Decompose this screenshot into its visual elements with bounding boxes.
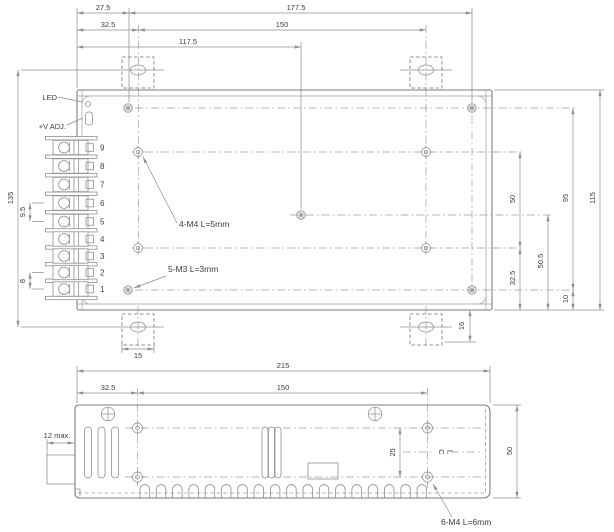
vent-slot [275,427,281,478]
m3-screw-bottom-right [468,286,477,295]
terminal-6 [53,196,94,210]
dim-215: 215 [277,361,290,370]
top-view: 9 8 7 6 5 4 3 2 1 LED [6,3,604,360]
terminal-block: 9 8 7 6 5 4 3 2 1 [46,137,106,300]
dim-12-max: 12 max. [44,431,71,440]
dim-9-5: 9.5 [18,207,27,217]
terminal-4 [53,232,94,246]
terminal-number: 8 [100,162,105,171]
terminal-number: 2 [100,269,105,278]
led-label: LED [42,93,57,102]
terminal-3 [53,249,94,263]
m3-screw-bottom-left [124,286,133,295]
centerline-symbol-c: C [437,449,446,455]
terminal-7 [53,177,94,191]
dim-117-5: 117.5 [179,37,197,46]
annotation-6-m4: 6-M4 L=6mm [441,517,491,527]
top-view-dimensions: 27.5 177.5 32.5 150 117.5 135 9.5 8 50 3… [6,3,604,360]
terminal-9 [53,140,94,154]
bottom-view: C L 215 32.5 150 12 max. 25 50 6-M4 [44,361,521,527]
bottom-view-body: C L [47,405,490,498]
dim-32-5-bottom: 32.5 [101,383,116,392]
vent-slot [262,427,268,478]
top-view-centerlines [135,25,577,348]
dim-27-5: 27.5 [96,3,111,12]
dim-25: 25 [388,448,397,456]
dim-135: 135 [6,192,15,205]
terminal-number: 4 [100,235,105,244]
terminal-number: 5 [100,218,105,227]
centerline-symbol-l: L [446,450,455,454]
terminal-number: 6 [100,199,105,208]
dim-50-5: 50.5 [536,254,545,269]
phillips-screw-right [368,407,382,421]
mounting-bracket-top-left [21,57,164,88]
terminal-5 [53,214,94,228]
m3-screw-center [297,211,306,220]
phillips-screw-left [101,407,115,421]
mounting-bracket-bottom-left [21,314,164,345]
voltage-adjust-pot [86,112,93,125]
dim-10: 10 [561,295,570,303]
dim-50-bottom: 50 [505,447,514,455]
terminal-1 [53,282,94,296]
dim-32-5: 32.5 [101,20,116,29]
bottom-view-annotations: 6-M4 L=6mm [433,484,491,527]
m3-screw-top-left [124,104,133,113]
terminal-2 [53,265,94,279]
annotation-5-m3: 5-M3 L=3mm [168,264,218,274]
terminal-cover-protrusion [47,455,75,484]
terminal-number: 7 [100,181,105,190]
vent-slot [112,427,119,478]
dim-150-bottom: 150 [277,383,290,392]
v-adj-label: +V ADJ. [39,122,66,131]
terminal-number: 3 [100,252,105,261]
dim-15: 15 [134,351,142,360]
vent-slot [98,427,105,478]
dim-8: 8 [18,279,27,283]
top-view-annotations: 4-M4 L=5mm 5-M3 L=3mm [134,157,229,288]
vent-slot [269,427,275,478]
label-plate [308,463,338,479]
dim-115: 115 [588,192,597,204]
dim-150: 150 [276,20,289,29]
dim-16: 16 [457,322,466,330]
dim-50: 50 [508,195,517,203]
vent-slot [85,427,92,478]
m4-hole-top-left [132,146,145,159]
terminal-number: 1 [100,285,105,294]
dim-95: 95 [561,194,570,202]
mechanical-drawing: 9 8 7 6 5 4 3 2 1 LED [0,0,614,532]
dim-177-5: 177.5 [287,3,306,12]
dim-32-5-right: 32.5 [508,271,517,286]
louver-vents [140,485,427,498]
terminal-8 [53,159,94,173]
mechanical-drawing-page: 9 8 7 6 5 4 3 2 1 LED [0,0,614,532]
m4-hole-bottom-left [132,242,145,255]
led-indicator [86,102,91,107]
annotation-4-m4: 4-M4 L=5mm [179,219,229,229]
terminal-number: 9 [100,144,105,153]
m3-screw-top-right [468,104,477,113]
top-view-body [77,90,492,310]
